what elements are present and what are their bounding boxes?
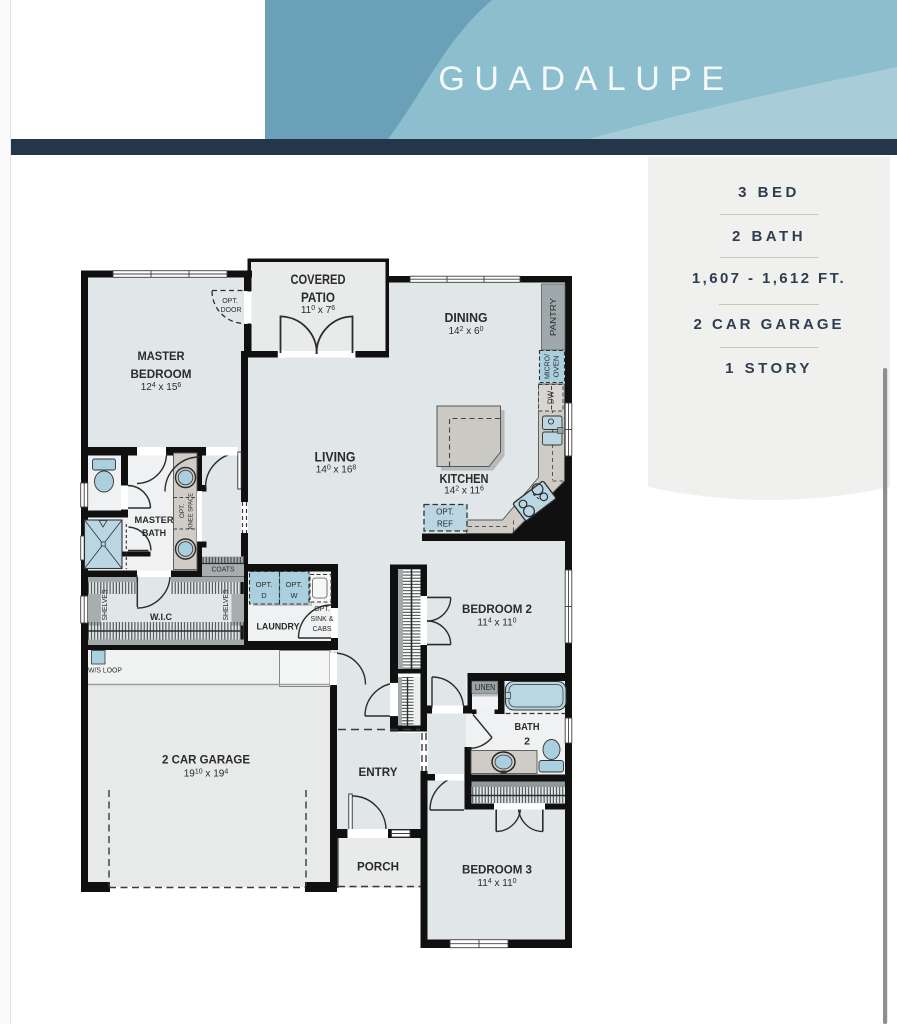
svg-text:OPT.: OPT. xyxy=(179,504,186,519)
svg-text:BEDROOM: BEDROOM xyxy=(131,367,192,381)
svg-text:PATIO: PATIO xyxy=(301,289,335,305)
svg-text:COATS: COATS xyxy=(212,565,235,574)
svg-text:KNEE SPACE: KNEE SPACE xyxy=(188,492,195,529)
svg-text:OPT.: OPT. xyxy=(314,606,330,613)
svg-text:D: D xyxy=(261,591,267,600)
svg-text:SHELVES: SHELVES xyxy=(100,590,109,621)
svg-text:OPT.: OPT. xyxy=(222,298,238,305)
svg-text:2: 2 xyxy=(524,736,530,748)
svg-text:LIVING: LIVING xyxy=(315,450,356,465)
svg-text:PORCH: PORCH xyxy=(357,862,399,874)
svg-text:142 x 60: 142 x 60 xyxy=(448,326,483,337)
svg-text:W/S LOOP: W/S LOOP xyxy=(88,668,122,675)
svg-text:BATH: BATH xyxy=(515,721,540,733)
svg-text:MICRO/: MICRO/ xyxy=(543,353,552,379)
svg-text:BEDROOM 2: BEDROOM 2 xyxy=(462,602,532,616)
svg-text:DOOR: DOOR xyxy=(221,307,242,314)
svg-text:110 x 76: 110 x 76 xyxy=(301,305,335,316)
svg-text:PANTRY: PANTRY xyxy=(548,298,558,336)
svg-text:MASTER: MASTER xyxy=(135,515,174,526)
svg-text:BEDROOM 3: BEDROOM 3 xyxy=(462,863,532,877)
svg-text:SINK &: SINK & xyxy=(311,616,334,623)
svg-text:2 CAR GARAGE: 2 CAR GARAGE xyxy=(162,753,250,767)
svg-text:124 x 156: 124 x 156 xyxy=(141,382,182,393)
svg-text:W: W xyxy=(290,591,298,600)
svg-text:COVERED: COVERED xyxy=(291,271,346,287)
svg-text:BATH: BATH xyxy=(142,528,166,539)
svg-text:DINING: DINING xyxy=(445,310,488,325)
svg-text:114 x 110: 114 x 110 xyxy=(477,618,516,629)
svg-text:OPT.: OPT. xyxy=(256,580,273,589)
svg-text:LAUNDRY: LAUNDRY xyxy=(257,622,301,633)
svg-text:CABS: CABS xyxy=(312,626,331,633)
svg-text:1910 x 194: 1910 x 194 xyxy=(184,769,229,780)
svg-text:OPT.: OPT. xyxy=(436,508,454,517)
svg-text:KITCHEN: KITCHEN xyxy=(440,471,489,486)
svg-text:W.I.C: W.I.C xyxy=(150,612,172,623)
svg-text:SHELVES: SHELVES xyxy=(221,590,230,621)
svg-text:DW: DW xyxy=(547,390,556,404)
svg-text:LINEN: LINEN xyxy=(475,683,495,692)
svg-text:OPT.: OPT. xyxy=(286,580,303,589)
svg-text:MASTER: MASTER xyxy=(138,349,185,363)
svg-text:114 x 110: 114 x 110 xyxy=(477,878,516,889)
svg-text:OVEN: OVEN xyxy=(552,356,561,378)
svg-text:REF: REF xyxy=(437,520,453,529)
svg-text:ENTRY: ENTRY xyxy=(359,767,398,779)
svg-text:142 x 116: 142 x 116 xyxy=(444,486,484,497)
svg-text:140 x 168: 140 x 168 xyxy=(316,465,357,476)
